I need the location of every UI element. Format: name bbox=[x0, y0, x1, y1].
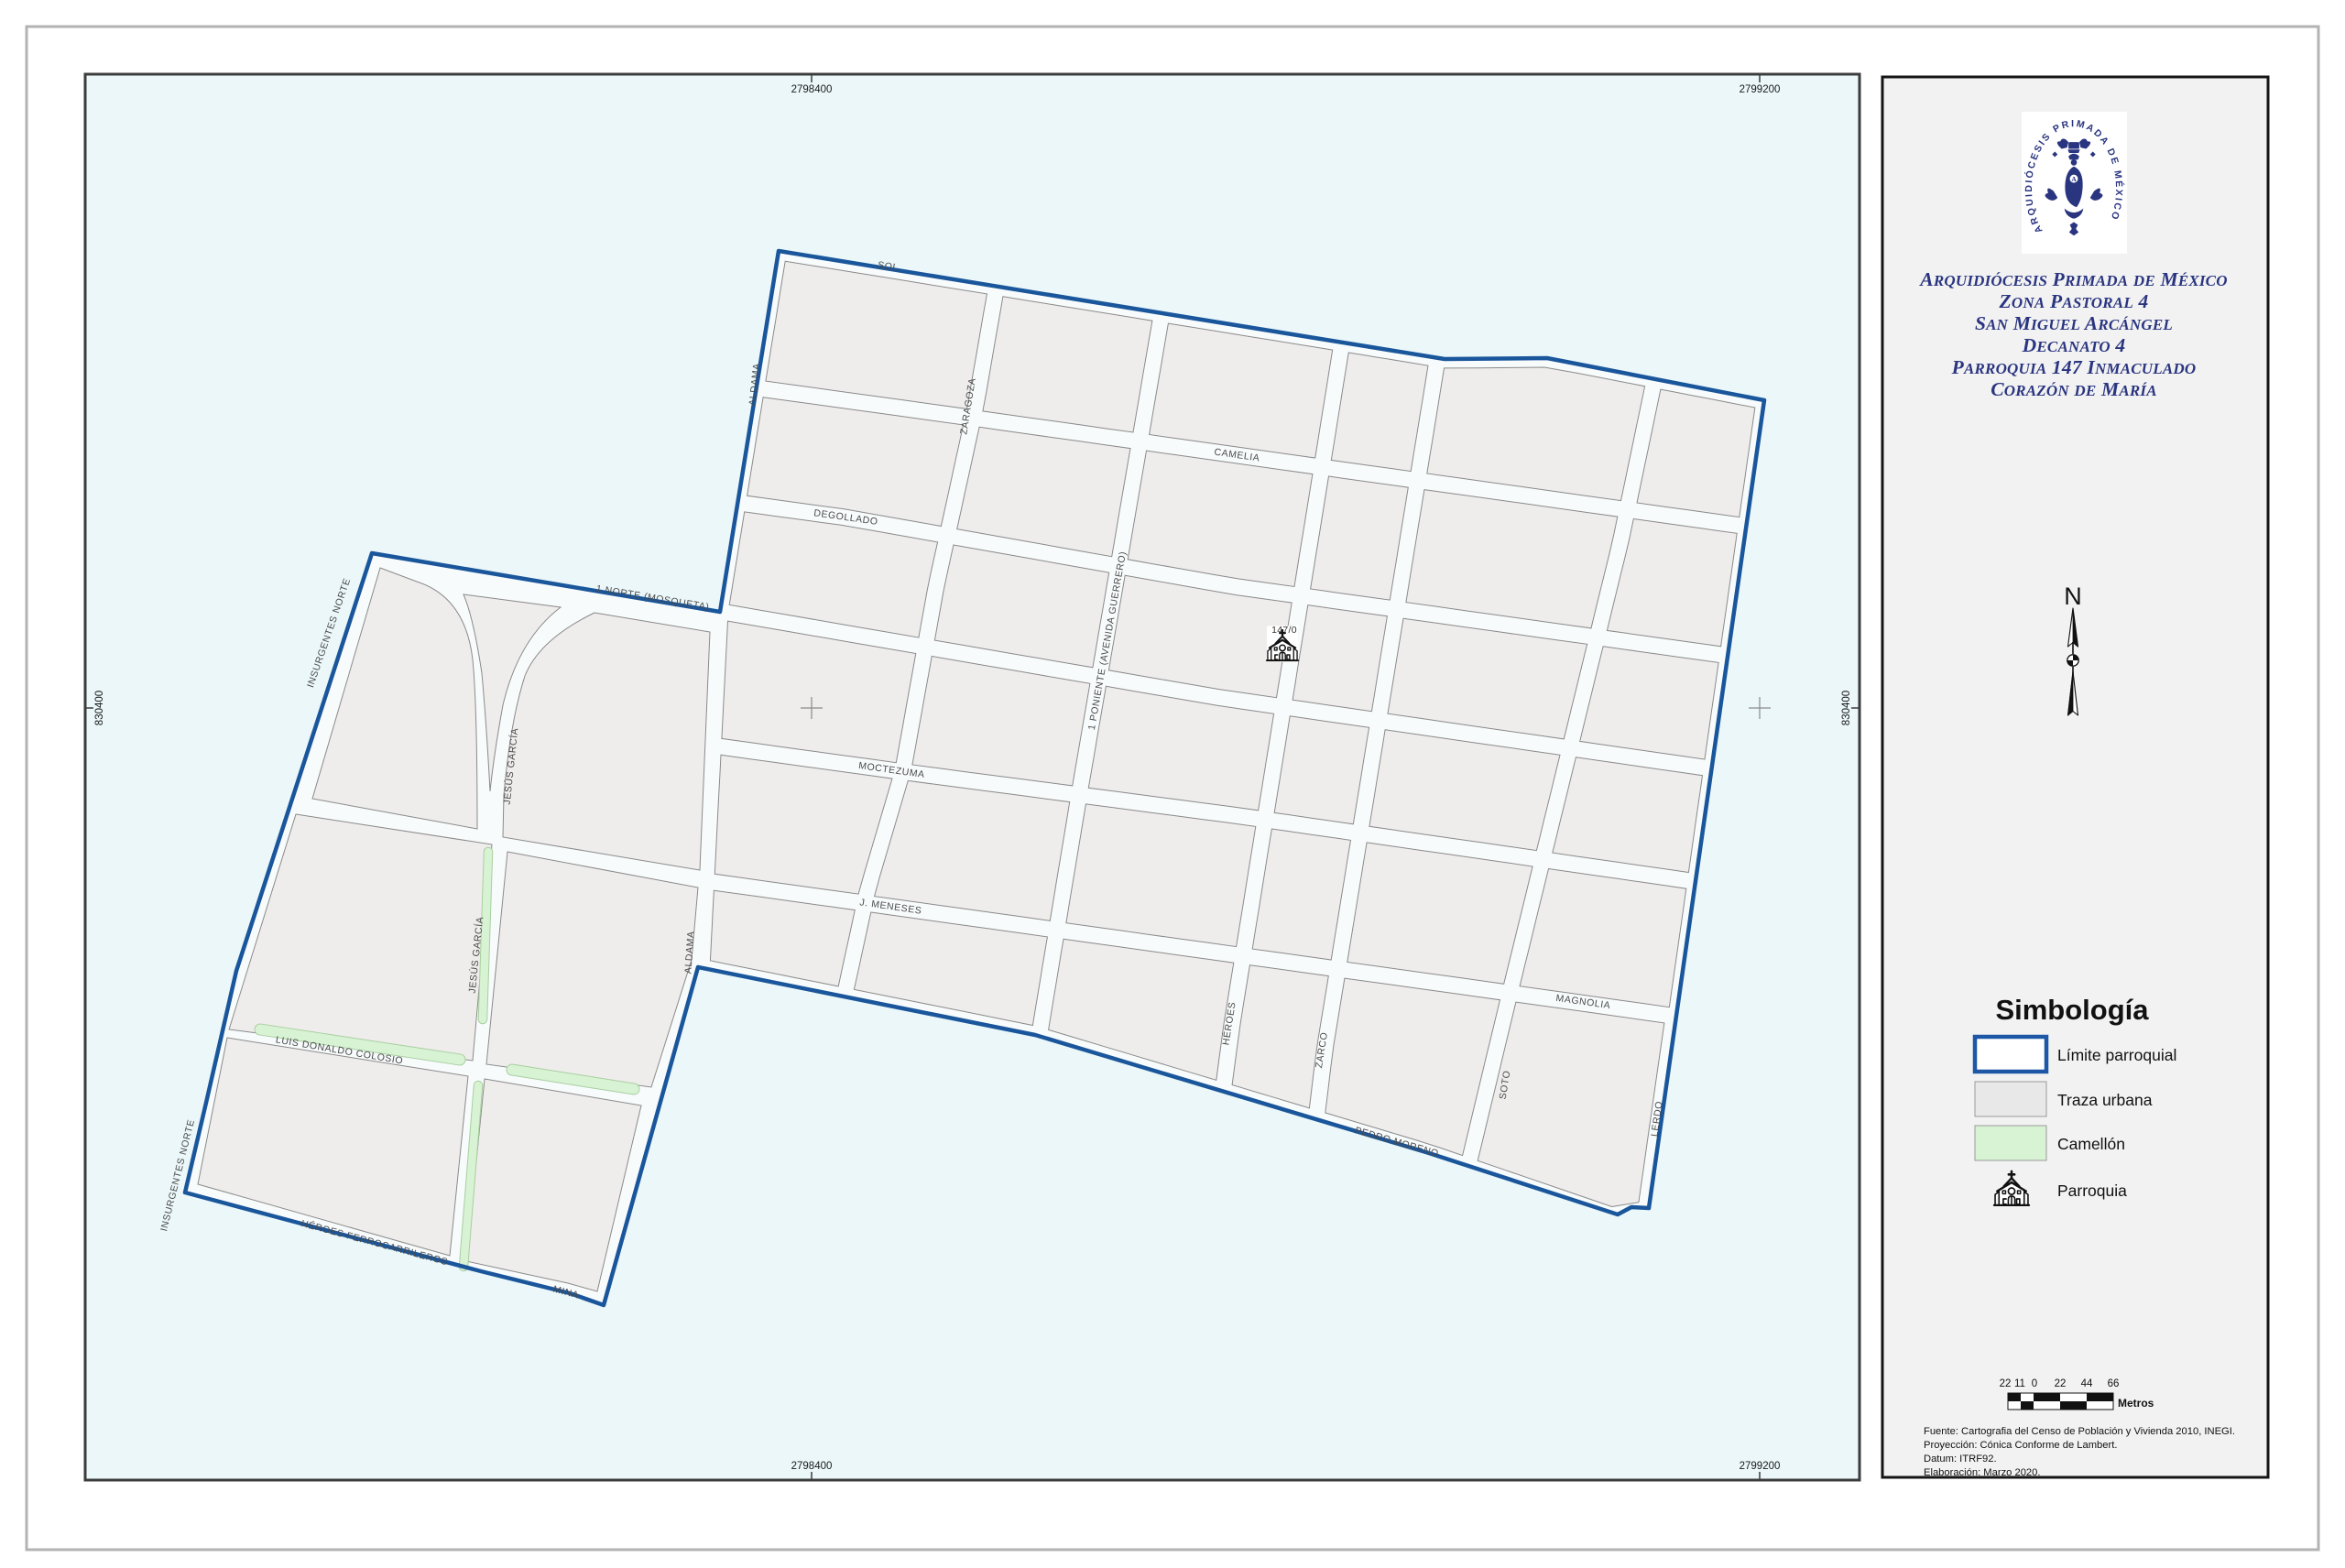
svg-text:Simbología: Simbología bbox=[1995, 994, 2149, 1026]
svg-text:ZONA PASTORAL 4: ZONA PASTORAL 4 bbox=[1999, 290, 2149, 312]
svg-text:Límite parroquial: Límite parroquial bbox=[2057, 1046, 2176, 1064]
svg-text:2799200: 2799200 bbox=[1740, 1461, 1781, 1472]
svg-text:Camellón: Camellón bbox=[2057, 1135, 2125, 1153]
svg-text:CORAZÓN DE MARÍA: CORAZÓN DE MARÍA bbox=[1991, 378, 2157, 400]
svg-text:2798400: 2798400 bbox=[791, 84, 833, 95]
svg-text:N: N bbox=[2064, 583, 2082, 610]
svg-text:44: 44 bbox=[2081, 1378, 2093, 1389]
svg-text:ARQUIDIÓCESIS PRIMADA DE MÉXIC: ARQUIDIÓCESIS PRIMADA DE MÉXICO bbox=[1918, 268, 2227, 290]
svg-text:830400: 830400 bbox=[1841, 691, 1852, 725]
svg-text:Proyección: Cónica Conforme de: Proyección: Cónica Conforme de Lambert. bbox=[1924, 1440, 2117, 1451]
svg-text:DECANATO 4: DECANATO 4 bbox=[2022, 334, 2126, 356]
svg-text:PARROQUIA 147 INMACULADO: PARROQUIA 147 INMACULADO bbox=[1951, 356, 2197, 378]
svg-text:0: 0 bbox=[2032, 1378, 2037, 1389]
svg-text:Parroquia: Parroquia bbox=[2057, 1181, 2127, 1200]
svg-text:A: A bbox=[2071, 175, 2077, 183]
svg-text:Traza urbana: Traza urbana bbox=[2057, 1091, 2153, 1109]
svg-text:2799200: 2799200 bbox=[1740, 84, 1781, 95]
svg-text:66: 66 bbox=[2108, 1378, 2120, 1389]
svg-text:22: 22 bbox=[2055, 1378, 2067, 1389]
svg-text:830400: 830400 bbox=[94, 691, 105, 725]
svg-text:Fuente: Cartografia del Censo: Fuente: Cartografia del Censo de Poblaci… bbox=[1924, 1426, 2235, 1437]
svg-text:Metros: Metros bbox=[2118, 1397, 2154, 1410]
svg-text:11: 11 bbox=[2014, 1378, 2025, 1389]
svg-text:Elaboración: Marzo 2020.: Elaboración: Marzo 2020. bbox=[1924, 1467, 2041, 1478]
svg-text:2798400: 2798400 bbox=[791, 1461, 833, 1472]
svg-text:Datum: ITRF92.: Datum: ITRF92. bbox=[1924, 1454, 1997, 1465]
svg-text:22: 22 bbox=[2000, 1378, 2012, 1389]
svg-text:SAN MIGUEL ARCÁNGEL: SAN MIGUEL ARCÁNGEL bbox=[1975, 312, 2173, 334]
svg-text:147/0: 147/0 bbox=[1271, 625, 1297, 636]
